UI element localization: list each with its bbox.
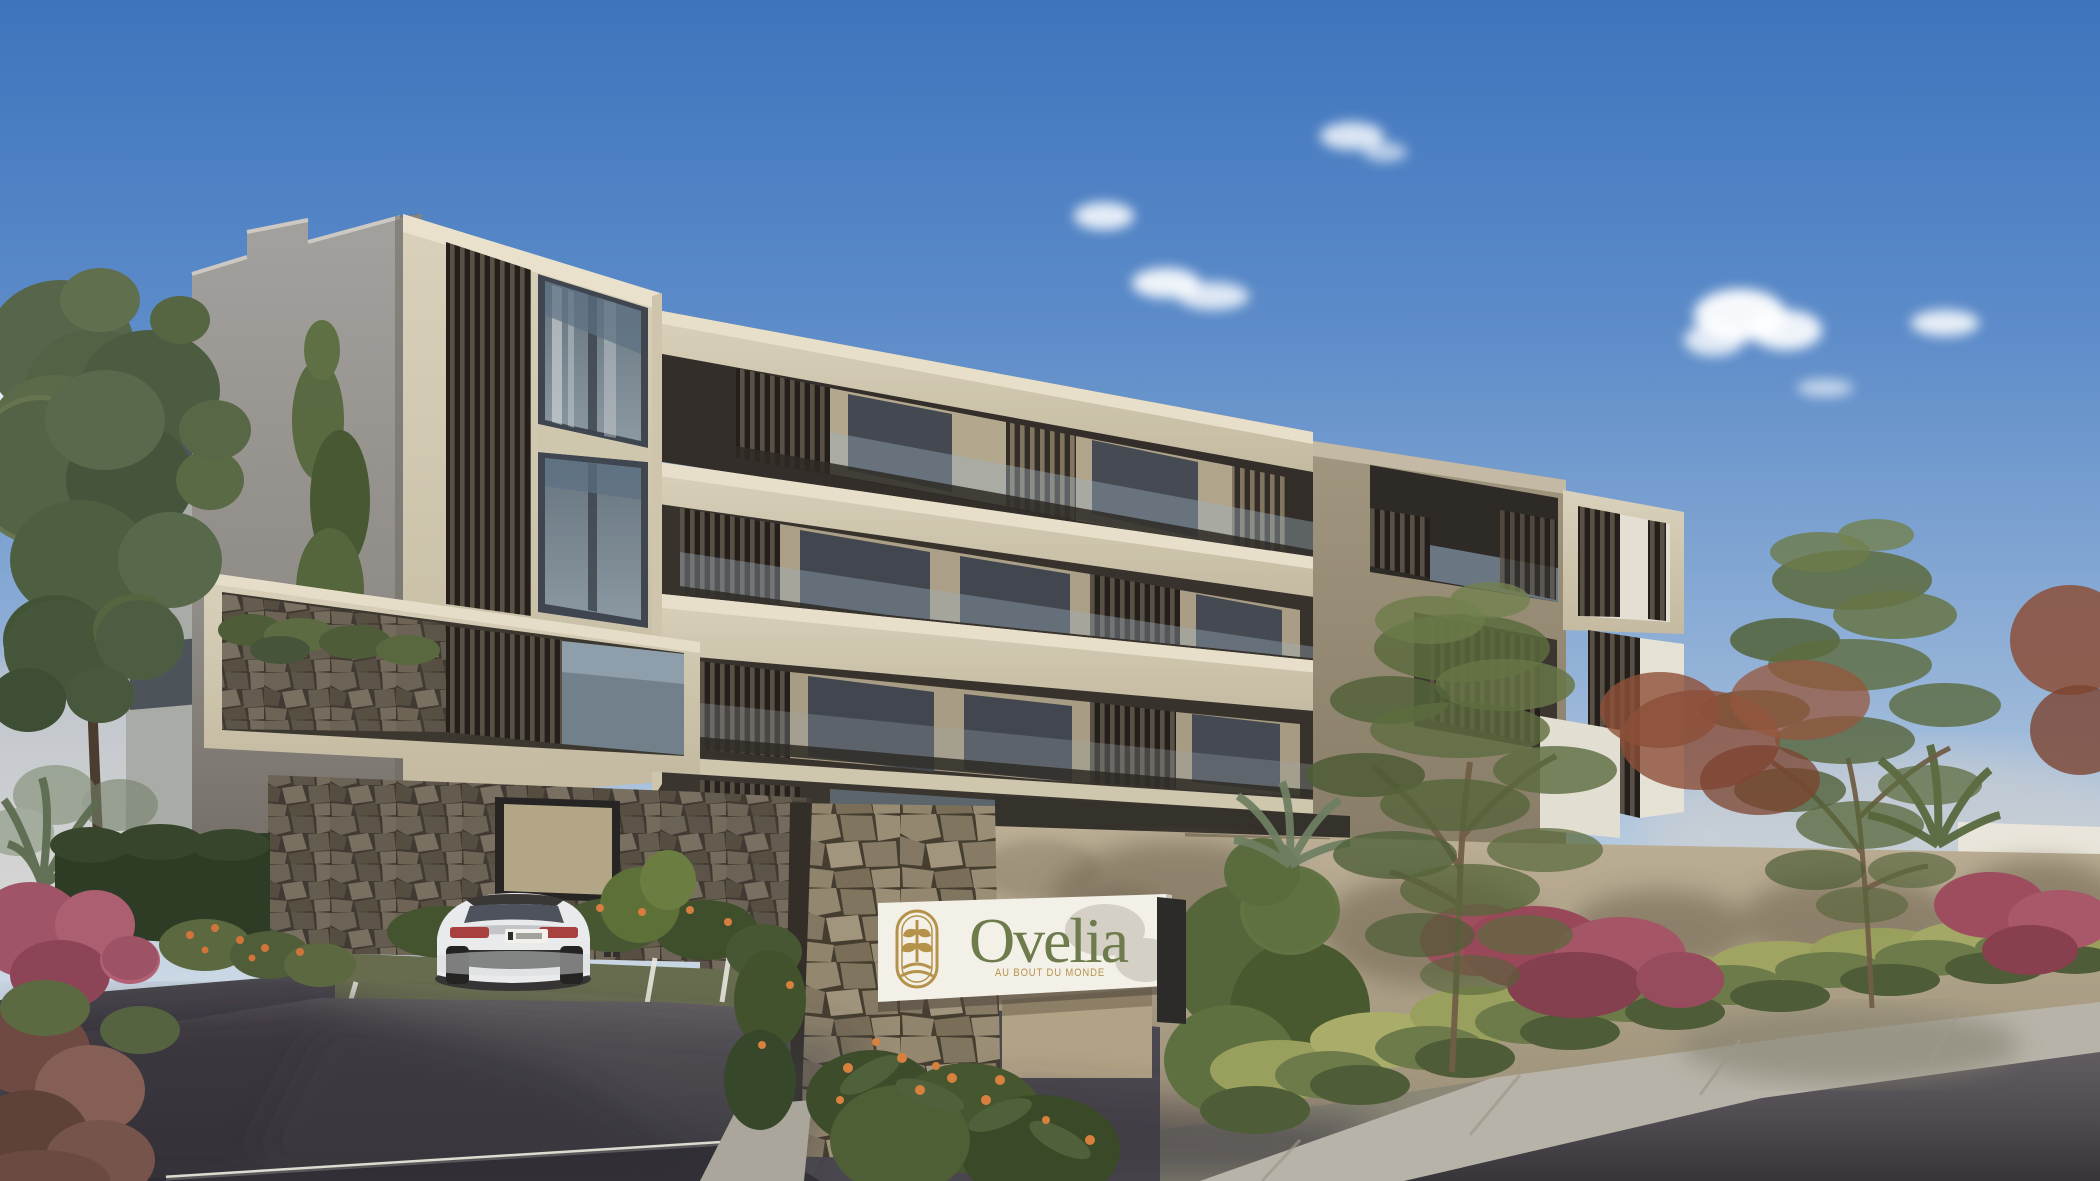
svg-text:Ovelia: Ovelia bbox=[969, 905, 1129, 976]
svg-text:AU BOUT DU MONDE: AU BOUT DU MONDE bbox=[995, 967, 1105, 979]
